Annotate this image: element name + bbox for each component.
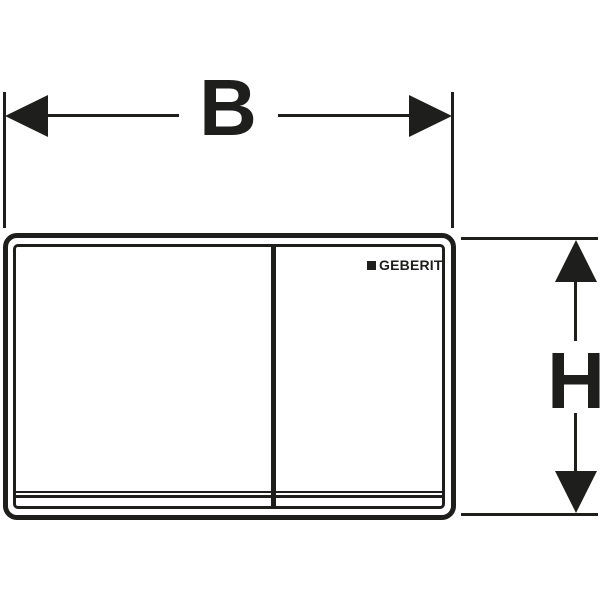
dimension-h-line-lower-segment — [574, 413, 577, 472]
dimension-b-label: B — [180, 68, 276, 148]
arrow-down-icon — [555, 471, 597, 513]
dimension-b-line-right-segment — [278, 114, 410, 117]
arrow-left-icon — [5, 95, 48, 137]
plate-inner-frame — [13, 244, 445, 509]
dimension-b-line-left-segment — [46, 114, 179, 117]
dimension-h-label: H — [536, 341, 600, 421]
dimension-h-line-upper-segment — [574, 281, 577, 341]
geberit-logo: GEBERIT — [367, 258, 443, 272]
geberit-logo-text: GEBERIT — [379, 258, 443, 272]
arrow-up-icon — [555, 240, 597, 282]
plate-divider — [271, 246, 276, 508]
diagram-canvas: B GEBERIT H — [0, 0, 600, 600]
plate-bottom-groove-lower-line — [16, 495, 442, 498]
arrow-right-icon — [409, 95, 452, 137]
geberit-logo-square-icon — [367, 261, 376, 270]
plate-bottom-groove-upper-line — [16, 491, 442, 493]
dimension-h-extension-line-bottom — [461, 513, 598, 516]
